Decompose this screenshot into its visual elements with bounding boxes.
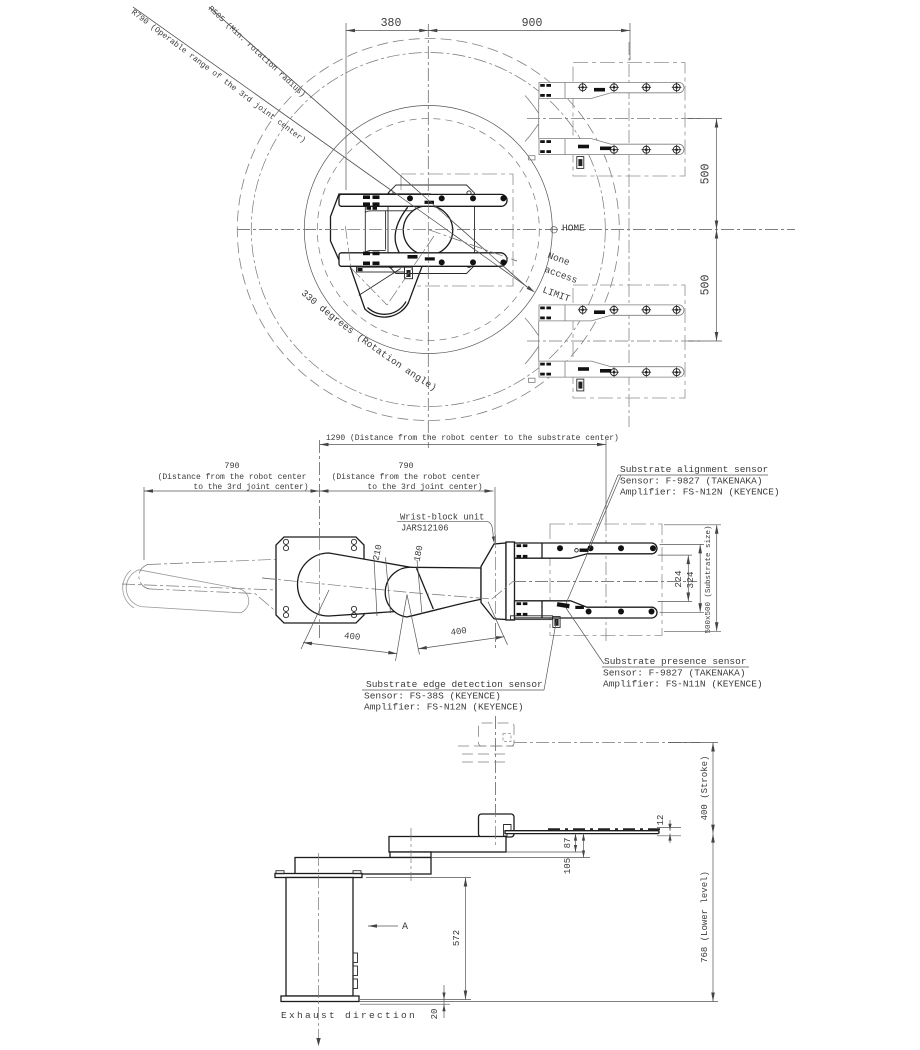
svg-text:500: 500 [700,164,713,185]
svg-text:12: 12 [656,815,666,826]
svg-text:HOME: HOME [562,223,585,234]
svg-text:1290 (Distance from the robot: 1290 (Distance from the robot center to … [326,434,619,443]
svg-text:access: access [543,264,579,286]
svg-text:to the 3rd joint center): to the 3rd joint center) [367,483,482,492]
svg-text:500x500 (Substrate size): 500x500 (Substrate size) [705,525,713,633]
svg-text:400: 400 [344,631,361,643]
svg-text:Amplifier: FS-N12N (KEYENCE): Amplifier: FS-N12N (KEYENCE) [620,487,780,498]
svg-text:768 (Lower level): 768 (Lower level) [700,871,710,963]
svg-text:Substrate alignment sensor: Substrate alignment sensor [620,464,768,475]
svg-text:Sensor: F-9827 (TAKENAKA): Sensor: F-9827 (TAKENAKA) [603,668,746,679]
svg-text:(Distance from the robot cente: (Distance from the robot center [158,473,307,482]
svg-text:790: 790 [224,461,239,471]
svg-text:210: 210 [371,544,384,562]
svg-text:500: 500 [700,275,713,296]
svg-text:LIMIT: LIMIT [541,284,572,304]
svg-text:400: 400 [450,626,467,638]
svg-text:Substrate presence sensor: Substrate presence sensor [604,656,747,667]
svg-text:180: 180 [412,545,425,563]
svg-text:790: 790 [398,461,413,471]
svg-text:JARS12106: JARS12106 [401,524,449,534]
svg-text:900: 900 [522,17,543,30]
svg-text:Amplifier: FS-N12N (KEYENCE): Amplifier: FS-N12N (KEYENCE) [364,702,524,713]
svg-text:224: 224 [673,570,684,587]
svg-text:Amplifier: FS-N11N (KEYENCE): Amplifier: FS-N11N (KEYENCE) [603,679,763,690]
svg-text:Sensor: F-9827 (TAKENAKA): Sensor: F-9827 (TAKENAKA) [620,476,763,487]
svg-text:87: 87 [563,838,573,849]
svg-text:R505 (Min. rotation radius): R505 (Min. rotation radius) [206,5,307,100]
svg-text:A: A [402,922,408,933]
svg-text:(Distance from the robot cente: (Distance from the robot center [332,473,481,482]
svg-text:572: 572 [452,930,462,946]
svg-text:324: 324 [685,571,696,588]
svg-text:400 (Stroke): 400 (Stroke) [700,756,710,821]
svg-text:Substrate edge detection senso: Substrate edge detection sensor [366,679,543,690]
svg-text:to the 3rd joint center): to the 3rd joint center) [193,483,308,492]
svg-text:Sensor: FS-38S (KEYENCE): Sensor: FS-38S (KEYENCE) [364,691,501,702]
svg-text:105: 105 [563,858,573,874]
svg-text:20: 20 [430,1009,440,1020]
svg-text:Exhaust direction: Exhaust direction [281,1010,417,1021]
svg-text:380: 380 [381,17,402,30]
